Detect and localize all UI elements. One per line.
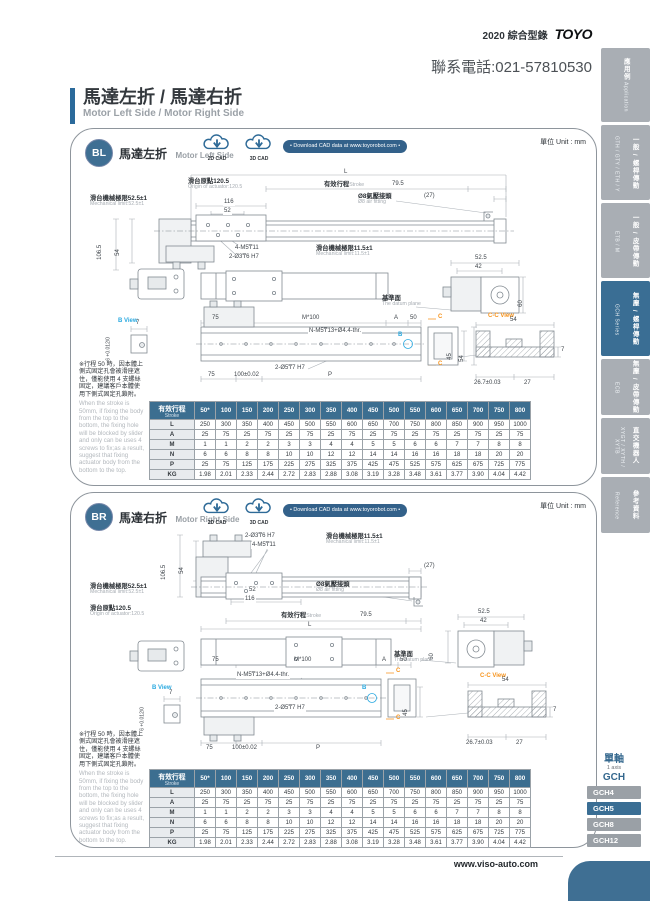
table-cell: 75 [216, 798, 237, 808]
b-view-label: B View [118, 318, 138, 325]
table-cell: 25 [405, 430, 426, 440]
series-item-gch5[interactable]: GCH5 [587, 802, 641, 815]
stroke-50-note: ※行程 50 時，因本體上側式固定孔會被滑座遮住，僅能使用 4 支螺絲固定，建議… [79, 731, 145, 844]
tab-label-zh: 直交機器人 [631, 427, 638, 465]
dim-mech115-en: Mechanical limit:11.5±1 [316, 252, 373, 258]
table-row: P257512517522527532537542547552557562567… [150, 828, 531, 838]
table-cell: 6 [216, 450, 237, 460]
dim-L: L [344, 169, 347, 176]
datum-plane-label: 基準面The datum plane [382, 295, 421, 308]
stroke-col-header: 800 [510, 770, 531, 788]
table-cell: 1.98 [195, 470, 216, 480]
table-cell: 450 [279, 788, 300, 798]
series-title-zh: 單軸 [584, 750, 644, 765]
table-row: KG1.982.012.332.442.722.832.883.083.193.… [150, 838, 531, 848]
table-cell: 3.19 [363, 838, 384, 848]
stroke-col-header: 150 [237, 770, 258, 788]
table-cell: 2 [237, 808, 258, 818]
table-cell: 2.83 [300, 838, 321, 848]
catalog-header: 2020 綜合型錄TOYO [483, 26, 592, 42]
dim-42: 42 [475, 264, 482, 271]
download-2d-cad-button[interactable]: 2D CAD [199, 133, 235, 162]
dim-holes-m5: 4-M5₸11 [234, 245, 260, 252]
row-label: P [150, 828, 195, 838]
table-cell: 18 [468, 450, 489, 460]
drawing-linework [76, 169, 596, 397]
note-zh: ※行程 50 時，因本體上側式固定孔會被滑座遮住，僅能使用 4 支螺絲固定，建議… [79, 731, 145, 768]
stroke-50-note: ※行程 50 時，因本體上側式固定孔會被滑座遮住，僅能使用 4 支螺絲固定，建議… [79, 361, 145, 474]
page-title: 馬達左折 / 馬達右折 Motor Left Side / Motor Righ… [70, 88, 244, 124]
cad-3d-label: 3D CAD [241, 156, 277, 162]
dim-52-5: 52.5 [478, 609, 490, 616]
table-row: N6688101012121414161618182020 [150, 450, 531, 460]
dim-60: 60 [518, 300, 525, 307]
row-label: L [150, 420, 195, 430]
table-cell: 20 [510, 818, 531, 828]
table-cell: 5 [384, 808, 405, 818]
sidebar-tab-gch-series[interactable]: 無塵 / 螺桿傳動GCH Series [601, 281, 650, 356]
dim-A: A [394, 315, 398, 322]
sidebar-tab-gth-gty-eth-y[interactable]: 一般 / 螺桿傳動GTH / GTY / ETH / Y [601, 125, 650, 200]
table-cell: 750 [405, 420, 426, 430]
page-title-zh: 馬達左折 / 馬達右折 [83, 88, 244, 108]
table-cell: 3.61 [426, 838, 447, 848]
table-cell: 20 [510, 450, 531, 460]
drawing-linework [76, 533, 596, 761]
table-cell: 3.19 [363, 470, 384, 480]
table-cell: 4 [321, 440, 342, 450]
table-cell: 3.08 [342, 470, 363, 480]
table-cell: 900 [468, 420, 489, 430]
table-cell: 18 [447, 450, 468, 460]
table-cell: 1000 [510, 788, 531, 798]
table-cell: 75 [468, 798, 489, 808]
table-cell: 800 [426, 788, 447, 798]
table-cell: 20 [489, 450, 510, 460]
table-cell: 25 [489, 798, 510, 808]
dim-54: 54 [179, 567, 186, 574]
table-cell: 375 [342, 828, 363, 838]
stroke-col-header: 350 [321, 770, 342, 788]
dim-holes-n: N-M5₸13+Ø4.4-thr. [236, 672, 290, 679]
table-cell: 500 [300, 420, 321, 430]
dim-mech-limit-115: 滑台機械極限11.5±1Mechanical limit:11.5±1 [326, 533, 383, 546]
dim-7-bview: 7 [169, 690, 172, 697]
table-cell: 4 [342, 440, 363, 450]
table-cell: 10 [300, 818, 321, 828]
stroke-col-header: 200 [258, 402, 279, 420]
page-corner-decoration [568, 861, 650, 901]
dim-cc-54: 54 [502, 677, 509, 684]
stroke-col-header: 250 [279, 770, 300, 788]
row-label: A [150, 430, 195, 440]
dim-26-7: 26.7±0.03 [466, 740, 493, 747]
footer-divider [55, 856, 563, 857]
stroke-col-header: 700 [468, 770, 489, 788]
table-cell: 475 [384, 460, 405, 470]
table-cell: 300 [216, 788, 237, 798]
table-cell: 625 [447, 460, 468, 470]
table-cell: 225 [279, 828, 300, 838]
table-cell: 6 [405, 808, 426, 818]
table-cell: 3 [300, 808, 321, 818]
table-cell: 1 [195, 440, 216, 450]
table-cell: 2.88 [321, 470, 342, 480]
stroke-col-header: 800 [510, 402, 531, 420]
stroke-col-header: 550 [405, 770, 426, 788]
table-cell: 8 [258, 450, 279, 460]
table-cell: 3 [300, 440, 321, 450]
table-cell: 250 [195, 420, 216, 430]
table-cell: 2.72 [279, 470, 300, 480]
note-en: When the stroke is 50mm, if fixing the b… [79, 770, 145, 844]
stroke-col-header: 100 [216, 402, 237, 420]
note-zh: ※行程 50 時，因本體上側式固定孔會被滑座遮住，僅能使用 4 支螺絲固定，建議… [79, 361, 145, 398]
dim-mech-limit-52: 滑台機械極限52.5±1Mechanical limit:52.5±1 [90, 195, 147, 208]
table-cell: 400 [258, 788, 279, 798]
table-cell: 25 [279, 798, 300, 808]
table-cell: 175 [258, 828, 279, 838]
dim-m100: M*100 [302, 315, 319, 322]
download-3d-cad-button[interactable]: 3D CAD [241, 133, 277, 162]
page-title-en: Motor Left Side / Motor Right Side [83, 108, 244, 119]
tab-label-en: Application [622, 82, 628, 112]
sidebar-tab-xygt-xyth-xytb[interactable]: 直交機器人XYGT / XYTH / XYTB [601, 418, 650, 474]
table-cell: 675 [468, 460, 489, 470]
table-cell: 25 [321, 430, 342, 440]
dim-mech115-en: Mechanical limit:11.5±1 [326, 540, 383, 546]
table-row: M1122334455667788 [150, 440, 531, 450]
table-cell: 700 [384, 420, 405, 430]
dim-52: 52 [248, 587, 257, 594]
dim-27: (27) [424, 563, 435, 570]
unit-label: 單位 Unit : mm [540, 137, 586, 147]
dim-holes-n: N-M5₸13+Ø4.4-thr. [308, 328, 362, 335]
table-cell: 25 [363, 798, 384, 808]
table-cell: 10 [279, 818, 300, 828]
table-cell: 14 [384, 818, 405, 828]
dim-P: P [328, 372, 332, 379]
table-cell: 4 [342, 808, 363, 818]
table-cell: 500 [300, 788, 321, 798]
dim-45: 45 [403, 709, 410, 716]
tab-label-en: GCH Series [613, 304, 619, 336]
table-cell: 75 [300, 430, 321, 440]
table-cell: 550 [321, 788, 342, 798]
dim-cc-7: 7 [561, 347, 564, 354]
table-row: N6688101012121414161618182020 [150, 818, 531, 828]
table-cell: 4.04 [489, 838, 510, 848]
dim-m100: M*100 [294, 657, 311, 664]
table-cell: 2.72 [279, 838, 300, 848]
row-label: L [150, 788, 195, 798]
table-cell: 2.33 [237, 838, 258, 848]
cloud-download-icon [200, 133, 234, 153]
dim-origin: 滑台原點120.5Origin of actuator:120.5 [90, 605, 144, 618]
table-cell: 725 [489, 460, 510, 470]
table-cell: 175 [258, 460, 279, 470]
dim-holes-o5: 2-Ø5₸7 H7 [274, 705, 306, 712]
table-cell: 700 [384, 788, 405, 798]
table-cell: 3.77 [447, 470, 468, 480]
marker-c-top: C [438, 314, 442, 321]
table-cell: 1 [216, 808, 237, 818]
stroke-col-header: 500 [384, 770, 405, 788]
table-cell: 575 [426, 460, 447, 470]
table-cell: 25 [447, 430, 468, 440]
table-cell: 4.42 [510, 838, 531, 848]
table-cell: 75 [216, 430, 237, 440]
dim-mech52-en: Mechanical limit:52.5±1 [90, 590, 147, 596]
stroke-col-header: 250 [279, 402, 300, 420]
table-cell: 2.88 [321, 838, 342, 848]
table-cell: 3.77 [447, 838, 468, 848]
table-cell: 2.83 [300, 470, 321, 480]
stroke-col-header: 600 [426, 770, 447, 788]
table-cell: 3.61 [426, 470, 447, 480]
dim-air-en: Ø8 air fitting [358, 200, 392, 206]
series-item-gch12[interactable]: GCH12 [587, 834, 641, 847]
table-cell: 5 [363, 808, 384, 818]
table-cell: 25 [363, 430, 384, 440]
dim-26-7: 26.7±0.03 [474, 380, 501, 387]
table-cell: 2.44 [258, 838, 279, 848]
row-label: KG [150, 470, 195, 480]
series-code: GCH [584, 772, 644, 783]
table-cell: 3.28 [384, 838, 405, 848]
dim-air-en: Ø8 air fitting [316, 588, 350, 594]
table-cell: 1000 [510, 420, 531, 430]
dim-42: 42 [480, 618, 487, 625]
sidebar-tab-etb-m[interactable]: 一般 / 皮帶傳動ETB / M [601, 203, 650, 278]
tab-label-zh: 一般 / 皮帶傳動 [631, 214, 638, 267]
table-cell: 18 [468, 818, 489, 828]
table-cell: 12 [342, 818, 363, 828]
dim-cc-27: 27 [524, 380, 531, 387]
table-cell: 75 [426, 430, 447, 440]
table-cell: 600 [342, 420, 363, 430]
tab-label-en: ETB / M [613, 231, 619, 253]
table-cell: 625 [447, 828, 468, 838]
badge-bl: BL [85, 139, 113, 167]
table-cell: 775 [510, 460, 531, 470]
table-cell: 3.90 [468, 470, 489, 480]
panel-title-zh: 馬達左折 [119, 147, 167, 161]
dim-79-5: 79.5 [392, 181, 404, 188]
table-cell: 75 [384, 430, 405, 440]
download-3d-cad-button[interactable]: 3D CAD [241, 497, 277, 526]
table-cell: 3.28 [384, 470, 405, 480]
series-item-gch8[interactable]: GCH8 [587, 818, 641, 831]
note-en: When the stroke is 50mm, if fixing the b… [79, 400, 145, 474]
spec-table-bl: 有效行程Stroke50*100150200250300350400450500… [149, 401, 531, 480]
table-cell: 125 [237, 828, 258, 838]
technical-drawing-bl: L 滑台原點120.5Origin of actuator:120.5 有效行程… [76, 169, 596, 397]
dim-stroke-zh: 有效行程 [324, 181, 349, 188]
table-cell: 75 [468, 430, 489, 440]
stroke-header: 有效行程Stroke [150, 770, 195, 788]
dim-mech52-en: Mechanical limit:52.5±1 [90, 202, 147, 208]
toyo-logo: TOYO [555, 26, 592, 42]
dim-79-5: 79.5 [360, 612, 372, 619]
tab-label-en: Reference [613, 492, 619, 520]
dim-L: L [308, 622, 311, 629]
dim-45: 45 [447, 353, 454, 360]
catalog-year-title: 2020 綜合型錄 [483, 31, 548, 42]
stroke-col-header: 650 [447, 402, 468, 420]
tab-label-zh: 參考資料 [631, 490, 638, 520]
table-cell: 75 [216, 828, 237, 838]
dim-stroke-en: Stroke [306, 613, 321, 619]
dim-54: 54 [115, 249, 122, 256]
stroke-col-header: 350 [321, 402, 342, 420]
table-cell: 75 [258, 430, 279, 440]
sidebar-tab-application[interactable]: 應用例Application [601, 48, 650, 122]
dim-stroke-en: Stroke [349, 182, 364, 188]
stroke-col-header: 400 [342, 402, 363, 420]
table-cell: 8 [510, 808, 531, 818]
cloud-download-icon [200, 497, 234, 517]
table-cell: 650 [363, 788, 384, 798]
dim-75-top: 75 [212, 657, 219, 664]
table-row: M1122334455667788 [150, 808, 531, 818]
download-2d-cad-button[interactable]: 2D CAD [199, 497, 235, 526]
dim-origin: 滑台原點120.5Origin of actuator:120.5 [188, 178, 242, 191]
tab-label-zh: 一般 / 螺桿傳動 [631, 136, 638, 189]
table-cell: 7 [468, 440, 489, 450]
table-cell: 2 [258, 440, 279, 450]
series-nav: 單軸 1 axis GCH GCH4 GCH5 GCH8 GCH12 [584, 750, 644, 847]
table-cell: 8 [237, 818, 258, 828]
table-cell: 12 [342, 450, 363, 460]
marker-c-bottom: C [396, 715, 400, 722]
marker-c-bottom: C [438, 361, 442, 368]
table-cell: 425 [363, 828, 384, 838]
table-row: A25752575257525752575257525752575 [150, 798, 531, 808]
dim-holes-o5: 2-Ø5₸7 H7 [274, 365, 306, 372]
row-label: P [150, 460, 195, 470]
dim-holes-o3: 2-Ø3₸6 H7 [228, 254, 260, 261]
table-cell: 900 [468, 788, 489, 798]
title-accent-bar [70, 88, 75, 124]
dim-cc-54: 54 [510, 317, 517, 324]
table-cell: 525 [405, 460, 426, 470]
table-cell: 475 [384, 828, 405, 838]
table-cell: 3.48 [405, 470, 426, 480]
row-label: A [150, 798, 195, 808]
contact-phone: 聯系電話:021-57810530 [431, 56, 592, 77]
stroke-col-header: 50* [195, 402, 216, 420]
table-cell: 25 [195, 828, 216, 838]
tab-label-zh: 應用例 [622, 58, 629, 81]
dim-52: 52 [223, 208, 232, 215]
table-cell: 25 [489, 430, 510, 440]
unit-label: 單位 Unit : mm [540, 501, 586, 511]
dim-106-5: 106.5 [97, 245, 104, 260]
dim-50: 50 [400, 657, 407, 664]
table-cell: 20 [489, 818, 510, 828]
download-cad-link[interactable]: • Download CAD data at www.toyorobot.com… [283, 140, 407, 153]
panel-title-zh: 馬達右折 [119, 511, 167, 525]
cad-2d-label: 2D CAD [199, 520, 235, 526]
stroke-header: 有效行程Stroke [150, 402, 195, 420]
dim-75-bottom: 75 [206, 745, 213, 752]
table-cell: 75 [384, 798, 405, 808]
table-cell: 75 [342, 798, 363, 808]
dim-100: 100±0.02 [234, 372, 259, 379]
table-cell: 350 [237, 420, 258, 430]
dim-stroke-zh: 有效行程 [281, 612, 306, 619]
table-cell: 2 [258, 808, 279, 818]
dim-mech-limit-52: 滑台機械極限52.5±1Mechanical limit:52.5±1 [90, 583, 147, 596]
table-cell: 75 [510, 430, 531, 440]
table-cell: 300 [216, 420, 237, 430]
table-cell: 12 [321, 818, 342, 828]
table-cell: 1.98 [195, 838, 216, 848]
table-cell: 1 [195, 808, 216, 818]
sidebar-tab-reference[interactable]: 參考資料Reference [601, 477, 650, 533]
table-cell: 6 [195, 818, 216, 828]
dim-7-bview: 7 [136, 320, 139, 327]
dim-75-top: 75 [212, 315, 219, 322]
table-cell: 8 [237, 450, 258, 460]
series-item-gch4[interactable]: GCH4 [587, 786, 641, 799]
table-cell: 25 [279, 430, 300, 440]
stroke-col-header: 550 [405, 402, 426, 420]
dim-106-5: 106.5 [161, 565, 168, 580]
table-row: KG1.982.012.332.442.722.832.883.083.193.… [150, 470, 531, 480]
table-cell: 18 [447, 818, 468, 828]
table-cell: 950 [489, 788, 510, 798]
dim-origin-en: Origin of actuator:120.5 [188, 185, 242, 191]
stroke-col-header: 100 [216, 770, 237, 788]
table-cell: 16 [426, 450, 447, 460]
table-cell: 16 [426, 818, 447, 828]
table-cell: 2.33 [237, 470, 258, 480]
table-row: L250300350400450500550600650700750800850… [150, 788, 531, 798]
dim-holes-o3: 2-Ø3₸6 H7 [244, 533, 276, 540]
stroke-col-header: 50* [195, 770, 216, 788]
table-cell: 225 [279, 460, 300, 470]
download-cad-link[interactable]: • Download CAD data at www.toyorobot.com… [283, 504, 407, 517]
table-cell: 5 [363, 440, 384, 450]
table-cell: 75 [426, 798, 447, 808]
table-cell: 250 [195, 788, 216, 798]
dim-cc-27: 27 [516, 740, 523, 747]
table-cell: 400 [258, 420, 279, 430]
table-cell: 125 [237, 460, 258, 470]
dim-stroke: 有效行程Stroke [281, 612, 321, 620]
dim-50: 50 [410, 315, 417, 322]
badge-br: BR [85, 503, 113, 531]
sidebar-tab-ecb[interactable]: 無塵 / 皮帶傳動ECB [601, 359, 650, 415]
cad-3d-label: 3D CAD [241, 520, 277, 526]
table-cell: 25 [195, 430, 216, 440]
table-cell: 950 [489, 420, 510, 430]
table-cell: 3 [279, 440, 300, 450]
dim-origin-en: Origin of actuator:120.5 [90, 612, 144, 618]
tab-label-zh: 無塵 / 皮帶傳動 [631, 360, 638, 413]
stroke-col-header: 200 [258, 770, 279, 788]
table-cell: 725 [489, 828, 510, 838]
table-cell: 25 [195, 798, 216, 808]
table-cell: 8 [489, 808, 510, 818]
tab-label-en: GTH / GTY / ETH / Y [613, 136, 619, 192]
table-cell: 4.42 [510, 470, 531, 480]
spec-table-br: 有效行程Stroke50*100150200250300350400450500… [149, 769, 531, 848]
datum-en: The datum plane [382, 302, 421, 308]
dim-6-tolerance: 6 +0.012/0 [106, 337, 112, 361]
